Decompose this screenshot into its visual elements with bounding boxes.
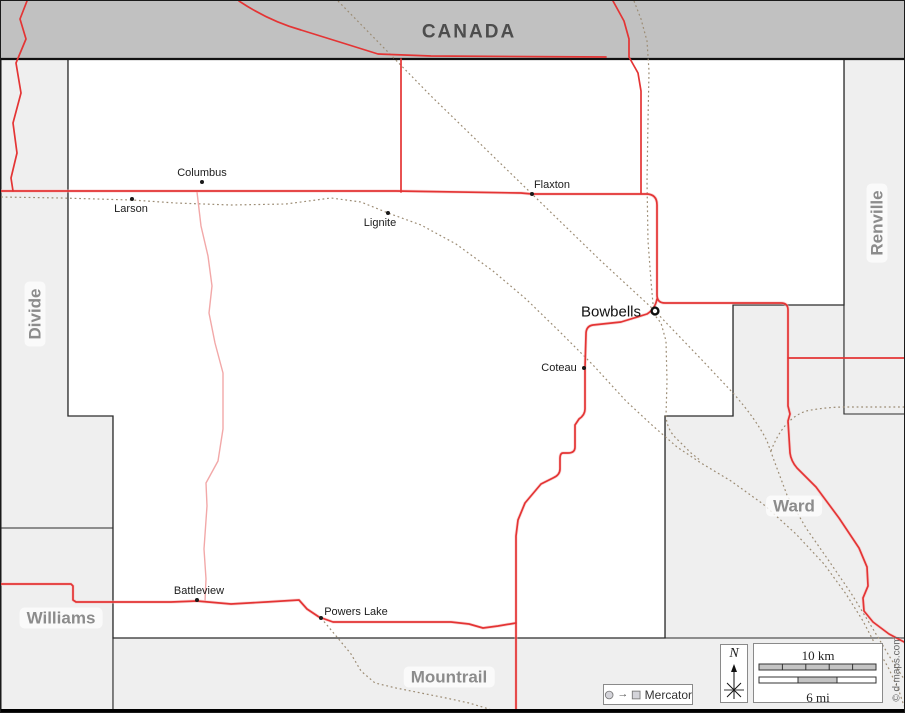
powers-lake-dot — [319, 616, 323, 620]
coteau-town-label: Coteau — [541, 362, 576, 374]
mountrail-county-label: Mountrail — [404, 667, 495, 688]
coteau-dot — [582, 366, 586, 370]
battleview-dot — [195, 598, 199, 602]
scale-mi-label: 6 mi — [754, 690, 882, 705]
battleview-town-label: Battleview — [174, 585, 224, 597]
powers-lake-town-label: Powers Lake — [324, 606, 388, 618]
larson-town-label: Larson — [114, 203, 148, 215]
canada-label: CANADA — [422, 22, 516, 43]
map-canvas — [1, 1, 905, 713]
scale-bar-box: 10 km 6 mi — [753, 643, 883, 703]
lignite-dot — [386, 211, 390, 215]
columbus-town-label: Columbus — [177, 167, 227, 179]
flaxton-dot — [530, 192, 534, 196]
projection-legend: → Mercator — [603, 684, 693, 705]
scale-bars — [754, 663, 882, 685]
projection-label: Mercator — [645, 688, 692, 702]
circle-icon — [604, 689, 614, 701]
divide-county-label: Divide — [25, 281, 46, 346]
county-map: CANADA Divide Renville Williams Mountrai… — [0, 0, 905, 713]
arrow-icon: → — [617, 689, 628, 700]
flaxton-town-label: Flaxton — [534, 179, 570, 191]
williams-county-label: Williams — [20, 608, 103, 629]
compass-icon — [721, 662, 747, 702]
larson-dot — [130, 197, 134, 201]
north-arrow-box: N — [720, 644, 748, 703]
ward-county-label: Ward — [766, 496, 822, 517]
map-frame-bottom — [1, 709, 905, 713]
north-label: N — [721, 646, 747, 662]
copyright-credit: © d-maps.com — [892, 636, 903, 701]
lignite-town-label: Lignite — [364, 217, 396, 229]
scale-km-label: 10 km — [754, 648, 882, 663]
square-icon — [631, 689, 641, 701]
renville-county-label: Renville — [867, 183, 888, 262]
region-shapes — [1, 1, 905, 713]
columbus-dot — [200, 180, 204, 184]
bowbells-county-seat-marker — [652, 308, 659, 315]
bowbells-town-label: Bowbells — [581, 304, 641, 321]
